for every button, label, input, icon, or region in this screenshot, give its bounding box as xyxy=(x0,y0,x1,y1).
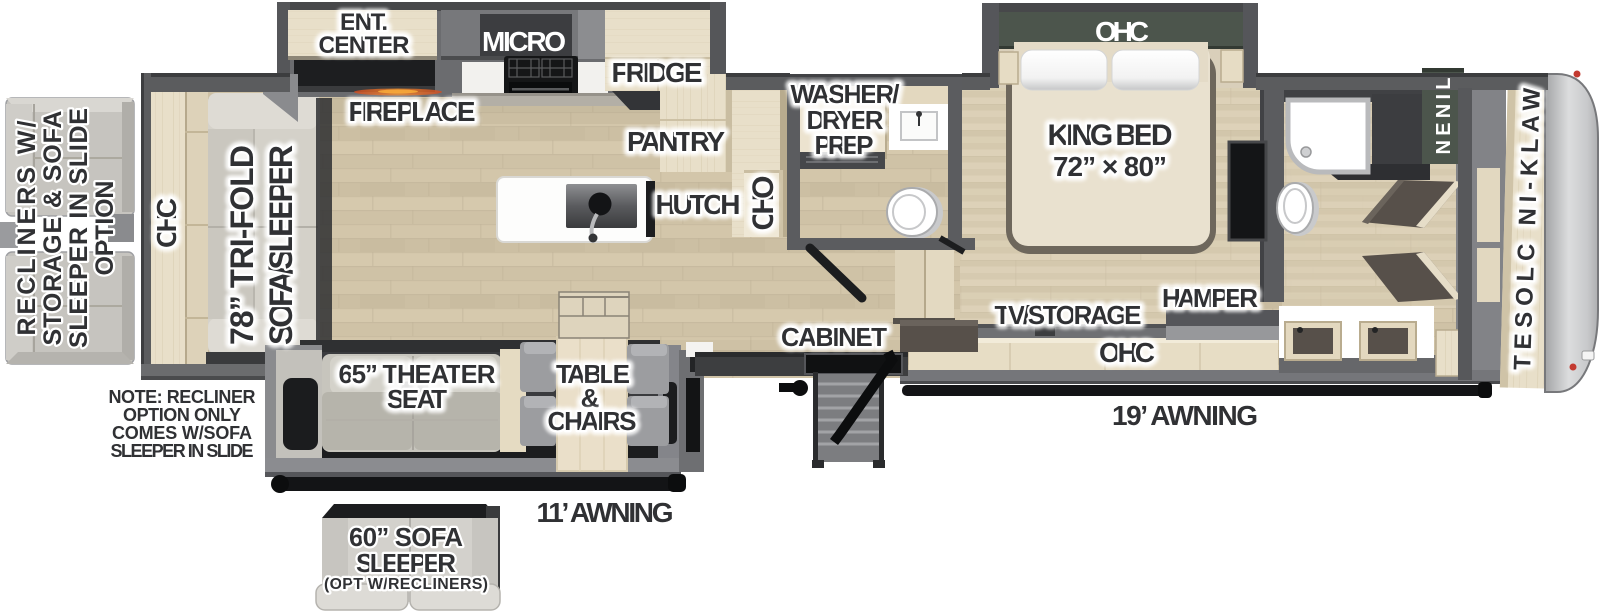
svg-text:PREP: PREP xyxy=(815,130,874,160)
svg-text:19’ AWNING: 19’ AWNING xyxy=(1112,400,1258,431)
svg-text:(OPT W/RECLINERS): (OPT W/RECLINERS) xyxy=(324,576,488,593)
svg-text:MICRO: MICRO xyxy=(482,26,566,57)
svg-text:FIREPLACE: FIREPLACE xyxy=(349,96,476,127)
svg-text:SLEEPER IN SLIDE: SLEEPER IN SLIDE xyxy=(65,108,93,348)
svg-text:OPTION: OPTION xyxy=(91,181,119,276)
svg-text:OHC: OHC xyxy=(1095,16,1149,47)
svg-text:SEAT: SEAT xyxy=(387,384,447,414)
svg-text:RECLINERS W/: RECLINERS W/ xyxy=(13,120,41,335)
svg-text:HUTCH: HUTCH xyxy=(656,189,741,220)
svg-text:KING BED: KING BED xyxy=(1048,119,1173,152)
svg-text:72” × 80”: 72” × 80” xyxy=(1053,151,1167,182)
svg-text:CHAIRS: CHAIRS xyxy=(548,406,637,436)
svg-text:CABINET: CABINET xyxy=(781,322,887,352)
svg-text:PANTRY: PANTRY xyxy=(627,126,725,157)
svg-text:FRIDGE: FRIDGE xyxy=(612,57,703,88)
svg-text:SLEEPER IN SLIDE: SLEEPER IN SLIDE xyxy=(111,441,254,461)
svg-text:TV/STORAGE: TV/STORAGE xyxy=(995,300,1142,330)
svg-text:STORAGE & SOFA: STORAGE & SOFA xyxy=(39,111,67,346)
svg-text:HAMPER: HAMPER xyxy=(1162,283,1258,313)
svg-text:78” TRI-FOLD: 78” TRI-FOLD xyxy=(224,145,260,345)
svg-text:NOTE: RECLINER: NOTE: RECLINER xyxy=(109,387,256,407)
svg-text:SLEEPER: SLEEPER xyxy=(356,548,456,578)
svg-text:CHO: CHO xyxy=(747,176,780,231)
svg-text:OHC: OHC xyxy=(151,198,182,248)
svg-text:11’ AWNING: 11’ AWNING xyxy=(537,497,674,528)
svg-text:COMES W/SOFA: COMES W/SOFA xyxy=(112,423,252,443)
svg-text:OPTION ONLY: OPTION ONLY xyxy=(123,405,241,425)
svg-text:SOFA/SLEEPER: SOFA/SLEEPER xyxy=(263,145,299,345)
svg-text:OHC: OHC xyxy=(1099,337,1155,368)
svg-text:CENTER: CENTER xyxy=(319,32,410,59)
svg-text:NENIL: NENIL xyxy=(1433,78,1455,155)
